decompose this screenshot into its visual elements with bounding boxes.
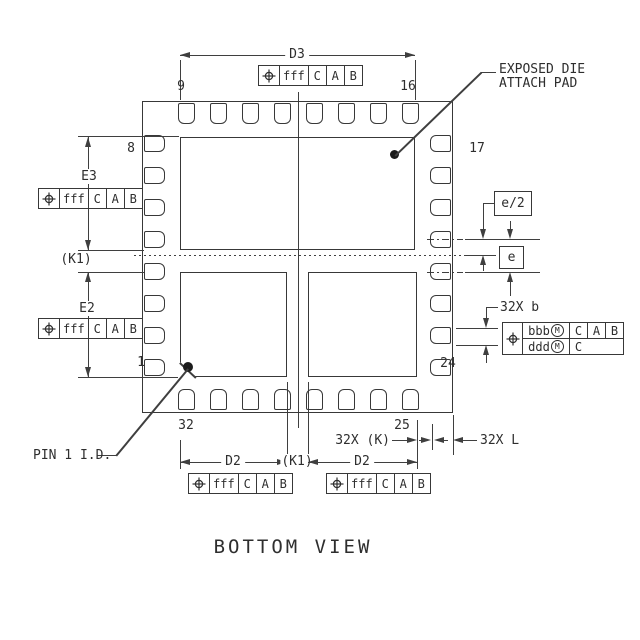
- terminal-pad: [338, 103, 355, 124]
- fcf-terminal-position: bbbM C A B dddM C: [502, 322, 624, 355]
- terminal-pad: [178, 389, 195, 410]
- fcf-datum: A: [326, 66, 344, 85]
- terminal-pad: [274, 389, 291, 410]
- fcf-terminal-row2: dddM C: [522, 338, 623, 354]
- arrowhead: [453, 437, 463, 443]
- terminal-pad: [430, 135, 451, 152]
- dim-e-half-box: e/2: [494, 191, 532, 216]
- material-condition-icon: M: [551, 340, 564, 353]
- fcf-tolerance: fff: [347, 474, 376, 493]
- terminal-pad: [430, 167, 451, 184]
- fcf-datum: B: [274, 474, 292, 493]
- fcf-e3: fff C A B: [38, 188, 143, 209]
- fcf-datum: A: [106, 319, 124, 338]
- extension-line: [456, 328, 498, 329]
- terminal-pad: [430, 199, 451, 216]
- dim-e3-label: E3: [77, 169, 101, 184]
- exposed-pad-callout-line2: ATTACH PAD: [499, 76, 577, 91]
- arrowhead: [405, 52, 415, 58]
- dim-b-label: 32X b: [500, 300, 539, 315]
- terminal-pad: [210, 389, 227, 410]
- arrowhead: [407, 459, 417, 465]
- fcf-datum: C: [376, 474, 394, 493]
- terminal-pad: [430, 263, 451, 280]
- terminal-pad: [144, 231, 165, 248]
- fcf-datum: C: [569, 323, 587, 338]
- position-tolerance-icon: [259, 66, 279, 85]
- fcf-datum: A: [587, 323, 605, 338]
- pin-label-9: 9: [177, 79, 185, 94]
- dim-e2-label: E2: [75, 301, 99, 316]
- leader-line: [510, 281, 511, 296]
- arrowhead: [407, 437, 417, 443]
- terminal-pad: [402, 389, 419, 410]
- fcf-tolerance: bbbM: [522, 323, 569, 338]
- terminal-pad: [430, 231, 451, 248]
- extension-line: [456, 345, 498, 346]
- fcf-datum: C: [88, 319, 106, 338]
- terminal-pad: [338, 389, 355, 410]
- dim-k-line: [392, 440, 408, 441]
- dim-k-label: 32X (K): [335, 433, 390, 448]
- pin-label-17: 17: [469, 141, 485, 156]
- terminal-pad: [306, 389, 323, 410]
- exposed-pad-top: [180, 137, 415, 250]
- position-tolerance-icon: [189, 474, 209, 493]
- position-tolerance-icon: [503, 323, 522, 354]
- fcf-datum: B: [605, 323, 623, 338]
- exposed-pad-bottom-left: [180, 272, 287, 377]
- dim-d2-right-label: D2: [350, 454, 374, 469]
- terminal-pad: [430, 295, 451, 312]
- pin1-id-callout: PIN 1 I.D.: [33, 448, 111, 463]
- arrowhead: [434, 437, 444, 443]
- leader-line: [483, 264, 484, 271]
- terminal-pad: [144, 135, 165, 152]
- terminal-pad: [144, 327, 165, 344]
- arrowhead: [180, 52, 190, 58]
- terminal-pad: [402, 103, 419, 124]
- fcf-datum: C: [569, 339, 587, 354]
- arrowhead: [85, 367, 91, 377]
- extension-line: [465, 239, 540, 240]
- arrowhead: [507, 229, 513, 239]
- extension-line: [465, 272, 540, 273]
- fcf-tolerance: fff: [59, 189, 88, 208]
- terminal-pad: [144, 263, 165, 280]
- fcf-d3: fff C A B: [258, 65, 363, 86]
- terminal-pad: [242, 103, 259, 124]
- terminal-pad: [144, 359, 165, 376]
- position-tolerance-icon: [327, 474, 347, 493]
- arrowhead: [85, 137, 91, 147]
- extension-line: [432, 424, 433, 450]
- leader-line: [486, 307, 498, 308]
- fcf-terminal-row1: bbbM C A B: [522, 323, 623, 338]
- terminal-pad: [144, 295, 165, 312]
- fcf-datum: A: [394, 474, 412, 493]
- terminal-pad: [242, 389, 259, 410]
- terminal-pad: [370, 103, 387, 124]
- arrowhead: [85, 240, 91, 250]
- arrowhead: [85, 272, 91, 282]
- fcf-d2-right: fff C A B: [326, 473, 431, 494]
- fcf-datum: C: [238, 474, 256, 493]
- fcf-datum: B: [124, 189, 142, 208]
- fcf-datum: A: [256, 474, 274, 493]
- fcf-datum: B: [344, 66, 362, 85]
- dim-l-line: [463, 440, 477, 441]
- package-drawing-bottom-view: D3 fff C A B E3 fff C A B (K1) E2 fff C …: [0, 0, 640, 640]
- dim-d3-label: D3: [285, 47, 309, 62]
- terminal-pad: [274, 103, 291, 124]
- terminal-pad: [370, 389, 387, 410]
- exposed-pad-bottom-right: [308, 272, 417, 377]
- arrowhead: [421, 437, 431, 443]
- fcf-datum: B: [412, 474, 430, 493]
- fcf-d2-left: fff C A B: [188, 473, 293, 494]
- terminal-pad: [210, 103, 227, 124]
- terminal-pad: [306, 103, 323, 124]
- extension-line: [453, 415, 454, 455]
- leader-line: [483, 203, 484, 230]
- leader-line: [483, 203, 494, 204]
- arrowhead: [480, 229, 486, 239]
- fcf-tolerance: fff: [59, 319, 88, 338]
- arrowhead: [483, 318, 489, 328]
- terminal-pad: [144, 199, 165, 216]
- fcf-datum: C: [88, 189, 106, 208]
- dim-l-label: 32X L: [480, 433, 519, 448]
- fcf-tolerance: fff: [279, 66, 308, 85]
- pin-label-8: 8: [127, 141, 135, 156]
- pin-label-16: 16: [400, 79, 416, 94]
- dim-e-box: e: [499, 246, 524, 269]
- leader-line: [481, 72, 496, 73]
- extension-line: [417, 420, 418, 469]
- extension-line: [78, 377, 178, 378]
- terminal-pad: [178, 103, 195, 124]
- material-condition-icon: M: [551, 324, 564, 337]
- dim-d2-left-label: D2: [221, 454, 245, 469]
- dim-k-line: [444, 440, 448, 441]
- fcf-datum: B: [124, 319, 142, 338]
- terminal-pad: [144, 167, 165, 184]
- position-tolerance-icon: [39, 189, 59, 208]
- pin-label-25: 25: [394, 418, 410, 433]
- position-tolerance-icon: [39, 319, 59, 338]
- terminal-pad: [430, 327, 451, 344]
- pin-label-32: 32: [178, 418, 194, 433]
- exposed-pad-callout-line1: EXPOSED DIE: [499, 62, 585, 77]
- fcf-tolerance: fff: [209, 474, 238, 493]
- view-title: BOTTOM VIEW: [214, 536, 373, 558]
- arrowhead: [308, 459, 318, 465]
- leader-line: [486, 354, 487, 363]
- dim-k1-left-label: (K1): [56, 252, 95, 267]
- fcf-datum: C: [308, 66, 326, 85]
- fcf-e2: fff C A B: [38, 318, 143, 339]
- fcf-tolerance: dddM: [522, 339, 569, 354]
- extension-line: [78, 250, 144, 251]
- terminal-pad: [430, 359, 451, 376]
- arrowhead: [180, 459, 190, 465]
- fcf-datum: A: [106, 189, 124, 208]
